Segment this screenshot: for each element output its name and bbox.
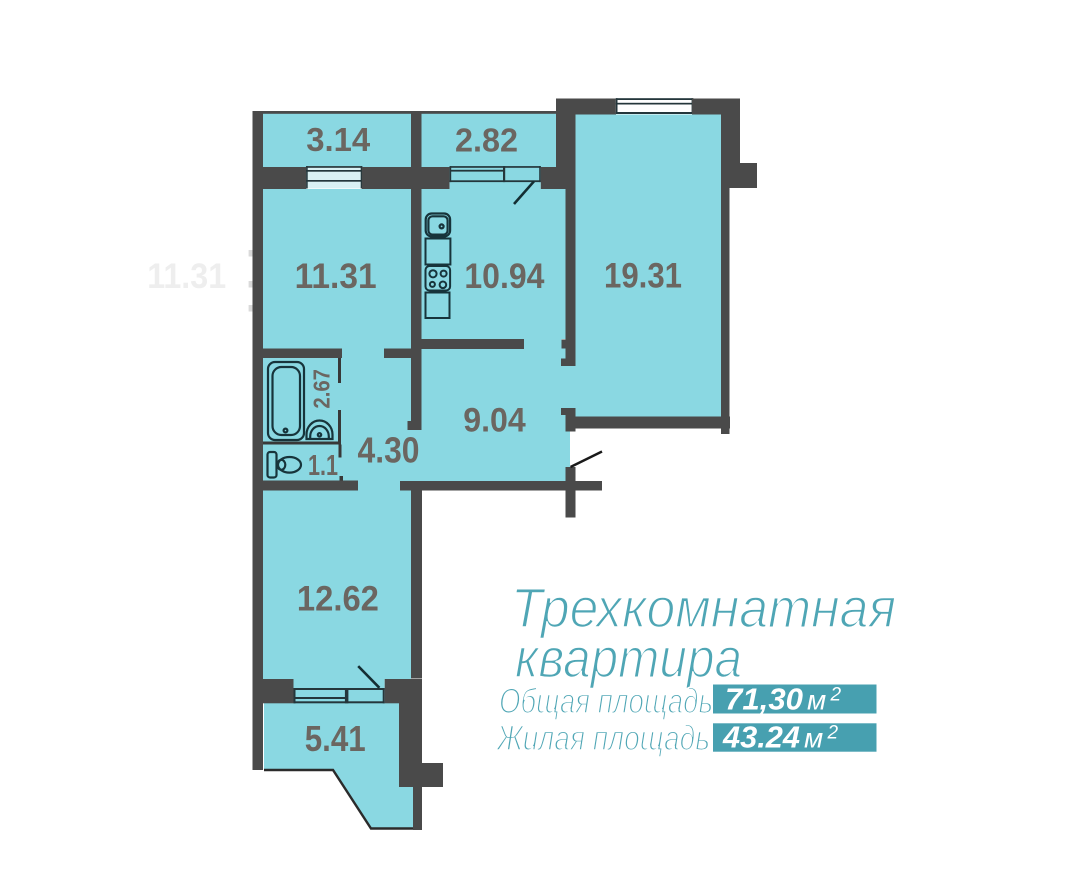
svg-text:12.62: 12.62	[297, 579, 379, 619]
svg-text:2: 2	[827, 723, 839, 744]
svg-text:2: 2	[830, 685, 842, 706]
svg-text:2.82: 2.82	[455, 123, 518, 160]
svg-text:11.31: 11.31	[295, 256, 377, 296]
svg-text:3.14: 3.14	[306, 122, 370, 159]
svg-text:10.94: 10.94	[464, 256, 544, 296]
svg-text:19.31: 19.31	[604, 256, 682, 296]
svg-text:2.67: 2.67	[308, 369, 334, 409]
svg-text:квартира: квартира	[515, 626, 742, 689]
svg-text:9.04: 9.04	[463, 402, 526, 440]
svg-text:71,30: 71,30	[725, 683, 803, 717]
svg-text:11.31: 11.31	[147, 256, 226, 296]
svg-text:4.30: 4.30	[358, 429, 420, 470]
svg-text:Общая площадь: Общая площадь	[499, 682, 713, 721]
svg-text:м: м	[804, 723, 823, 754]
svg-text:5.41: 5.41	[305, 718, 366, 759]
svg-text:Жилая площадь: Жилая площадь	[495, 719, 710, 758]
svg-text:43.24: 43.24	[722, 721, 800, 755]
svg-text:м: м	[807, 685, 826, 716]
svg-text:1.1: 1.1	[308, 450, 338, 482]
